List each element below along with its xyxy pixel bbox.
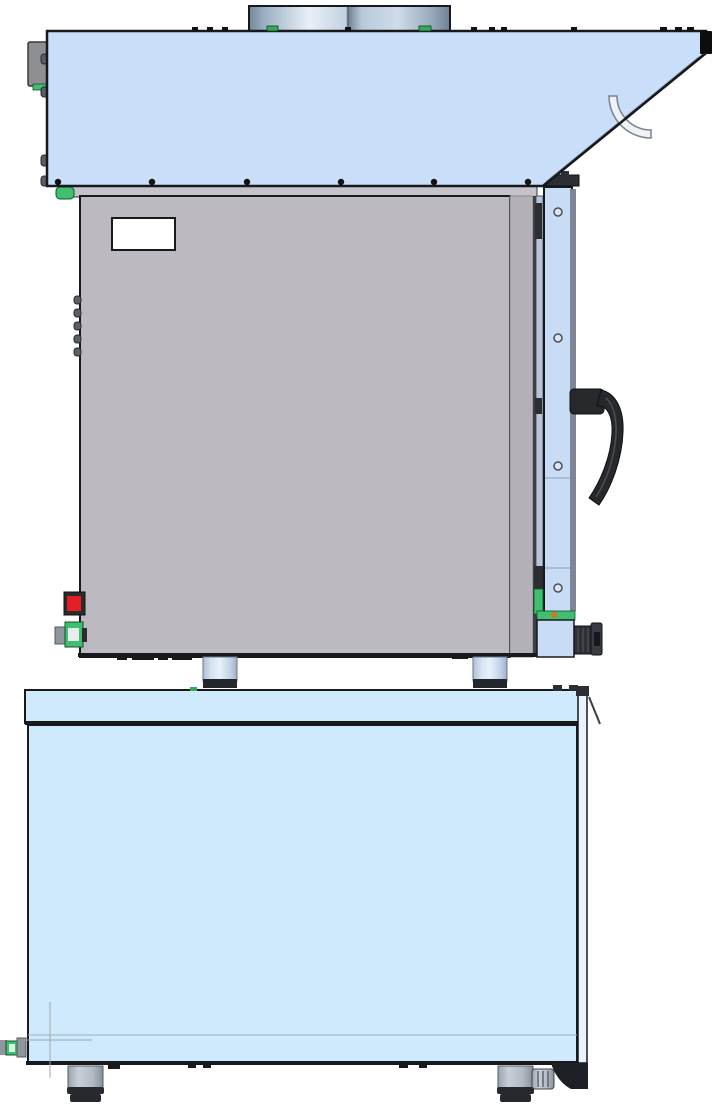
hinge-bump xyxy=(74,348,81,356)
clip xyxy=(660,27,667,31)
hinge-bump xyxy=(74,335,81,343)
drain-nut xyxy=(17,1038,26,1057)
water-fitting xyxy=(55,622,87,647)
clip xyxy=(207,27,213,31)
screw-hole xyxy=(554,334,562,342)
screw-hole xyxy=(554,584,562,592)
base-right-face xyxy=(578,691,587,1063)
clip xyxy=(675,27,682,31)
base-corner-wire xyxy=(589,697,600,724)
hinge-tab-top xyxy=(535,203,542,239)
screw-hole xyxy=(554,208,562,216)
foot-cylinder xyxy=(68,1066,103,1090)
hinge-bump xyxy=(74,296,81,304)
mark xyxy=(203,1064,211,1068)
base-cabinet xyxy=(0,685,600,1102)
clip xyxy=(501,27,507,31)
red-button xyxy=(64,592,85,615)
foot-ring xyxy=(500,1094,531,1102)
green-cap-fitting xyxy=(56,187,74,199)
leg-foot-band xyxy=(473,679,507,688)
clip xyxy=(687,27,694,31)
base-caster-bracket xyxy=(532,1063,588,1089)
drain-knob xyxy=(574,623,602,655)
base-front-panel xyxy=(28,725,577,1064)
foot-ring xyxy=(70,1094,101,1102)
vent-teal-tab xyxy=(419,26,431,31)
fitting-window xyxy=(68,628,79,641)
hood-shell xyxy=(47,31,706,186)
rivet xyxy=(431,179,437,185)
rivet xyxy=(55,179,61,185)
hinge-tab-mid xyxy=(535,398,542,414)
screw-hole xyxy=(554,462,562,470)
hinge-green-post xyxy=(534,589,543,614)
stacking-legs xyxy=(203,657,507,688)
hinge-box xyxy=(537,620,574,657)
base-teal-tab xyxy=(190,687,197,691)
oven-side-panel xyxy=(80,196,510,657)
foot-ring xyxy=(497,1087,534,1094)
drain-window xyxy=(9,1044,15,1052)
vent-dash xyxy=(158,655,168,660)
vent-dash xyxy=(452,655,468,659)
stacking-leg-rear xyxy=(473,657,507,681)
foot-ring xyxy=(67,1087,104,1094)
vent-dash xyxy=(117,655,127,660)
cad-side-view xyxy=(0,0,716,1113)
vent-teal-tab xyxy=(267,26,278,31)
hood-right-end-cap xyxy=(700,31,712,54)
oven-body xyxy=(55,196,537,660)
stacking-leg-front xyxy=(203,657,237,681)
clip xyxy=(345,27,351,31)
caster-wedge xyxy=(551,1063,588,1089)
hinge-pin xyxy=(551,612,557,618)
clip xyxy=(222,27,228,31)
door-handle xyxy=(570,389,623,505)
rivet xyxy=(149,179,155,185)
rating-label xyxy=(112,218,175,250)
drawing-canvas xyxy=(0,0,716,1113)
vent-dash xyxy=(172,655,192,660)
hinge-tab-bottom xyxy=(534,566,543,592)
mark xyxy=(188,1064,196,1068)
fitting-stub xyxy=(82,628,87,642)
hinge-bump xyxy=(74,322,81,330)
base-top-nub xyxy=(553,685,562,691)
leg-foot-band xyxy=(203,679,237,688)
mark xyxy=(108,1064,120,1069)
clip xyxy=(489,27,495,31)
clip xyxy=(192,27,198,31)
red-button-face xyxy=(67,596,81,611)
door-edge-panel xyxy=(544,187,572,613)
knob-recess xyxy=(594,632,600,646)
base-foot-rear xyxy=(497,1066,534,1102)
rivet xyxy=(244,179,250,185)
foot-cylinder xyxy=(498,1066,533,1090)
condensation-hood xyxy=(47,26,712,186)
base-drain-fitting xyxy=(0,1038,26,1057)
clip xyxy=(571,27,577,31)
mark xyxy=(399,1064,408,1068)
base-top-band xyxy=(25,690,580,723)
oven-side-panel-rear-fold xyxy=(510,196,533,657)
rivet xyxy=(525,179,531,185)
base-foot-front xyxy=(67,1066,104,1102)
mark xyxy=(419,1064,427,1068)
clip xyxy=(471,27,477,31)
hinge-bump xyxy=(74,309,81,317)
rivet xyxy=(338,179,344,185)
base-corner-cap xyxy=(576,686,589,696)
vent-dash xyxy=(132,655,154,660)
